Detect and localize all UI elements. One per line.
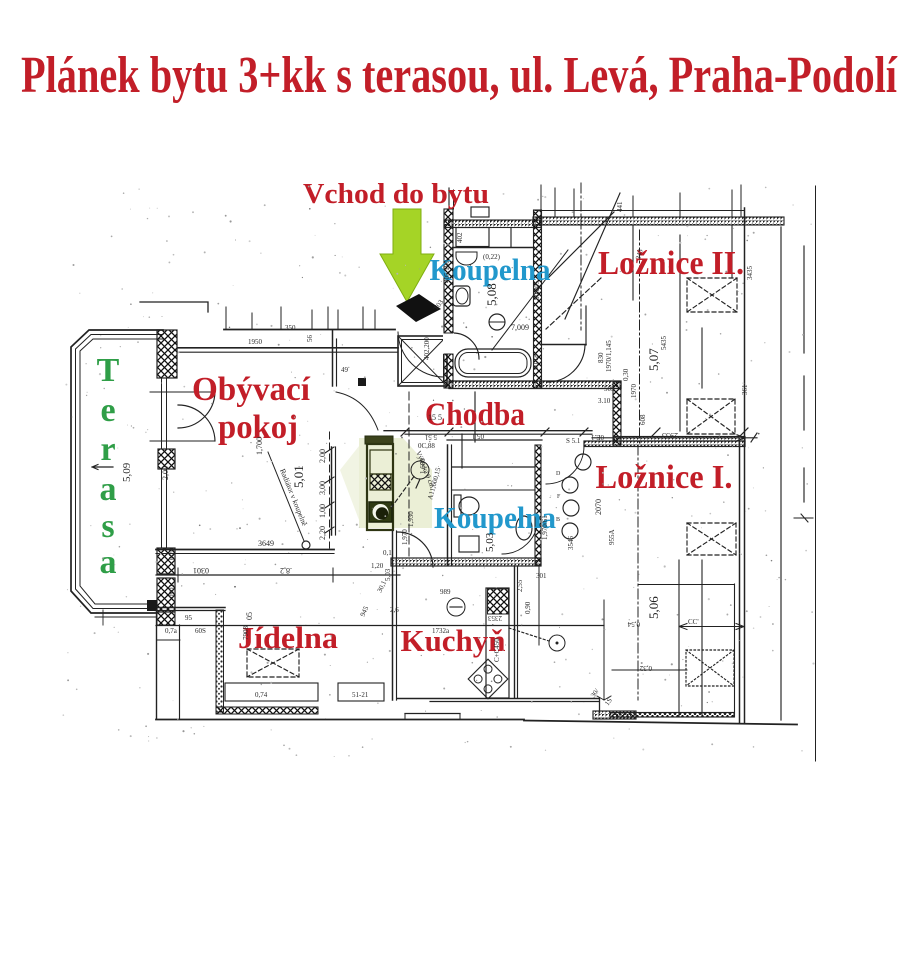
svg-text:361: 361 [741, 384, 749, 395]
svg-text:7908: 7908 [242, 626, 250, 641]
svg-text:0,90: 0,90 [524, 601, 532, 614]
svg-text:402,200: 402,200 [423, 337, 431, 360]
svg-text:5,06: 5,06 [646, 596, 661, 619]
svg-text:2353: 2353 [488, 614, 503, 622]
svg-text:0,54: 0,54 [627, 620, 640, 628]
svg-text:402: 402 [456, 232, 464, 243]
svg-text:989: 989 [440, 588, 451, 596]
svg-text:2,00: 2,00 [318, 449, 327, 463]
svg-text:608: 608 [639, 414, 647, 425]
svg-text:0C,88: 0C,88 [418, 442, 435, 450]
svg-text:(0,22): (0,22) [483, 253, 501, 261]
svg-text:2955: 2955 [662, 431, 678, 440]
svg-text:0,74: 0,74 [255, 691, 268, 699]
svg-text:Jídelna: Jídelna [238, 620, 339, 655]
svg-text:S 5.1: S 5.1 [566, 437, 581, 445]
svg-text:441: 441 [616, 201, 624, 212]
svg-text:1,00: 1,00 [318, 504, 327, 518]
svg-text:3649: 3649 [258, 539, 274, 548]
svg-text:56: 56 [306, 335, 314, 343]
svg-text:0,30: 0,30 [622, 368, 630, 381]
svg-text:a: a [100, 544, 117, 581]
svg-text:0,32: 0,32 [639, 664, 652, 672]
svg-text:1950: 1950 [248, 338, 263, 346]
svg-text:3.10: 3.10 [598, 397, 611, 405]
svg-text:830: 830 [597, 352, 605, 363]
svg-text:5435: 5435 [660, 336, 668, 351]
svg-text:s: s [101, 508, 114, 545]
svg-text:405,100: 405,100 [443, 260, 451, 283]
svg-text:Ložnice II.: Ložnice II. [598, 245, 744, 282]
svg-text:95: 95 [185, 614, 193, 622]
svg-text:0901: 0901 [168, 584, 176, 599]
svg-text:1,20: 1,20 [371, 562, 384, 570]
svg-text:0,7a: 0,7a [165, 627, 178, 635]
svg-text:7,009: 7,009 [511, 323, 529, 332]
svg-text:Obývací: Obývací [192, 371, 311, 408]
svg-text:D: D [556, 471, 561, 477]
svg-text:5,03: 5,03 [484, 532, 496, 552]
svg-text:301: 301 [536, 572, 547, 580]
svg-text:1,930: 1,930 [407, 511, 415, 527]
svg-text:0E.1: 0E.1 [590, 433, 604, 441]
svg-text:5 51: 5 51 [424, 433, 437, 441]
svg-text:2,55: 2,55 [516, 579, 524, 592]
svg-text:5,07: 5,07 [646, 348, 661, 371]
svg-text:1970/1,145: 1970/1,145 [605, 340, 613, 372]
svg-text:51-21: 51-21 [352, 691, 369, 699]
svg-text:1,970: 1,970 [401, 529, 409, 545]
svg-text:2070: 2070 [594, 499, 603, 515]
svg-text:1,700: 1,700 [255, 437, 264, 455]
svg-text:80,305: 80,305 [533, 280, 541, 300]
svg-text:05.1: 05.1 [471, 432, 484, 440]
svg-text:2,20: 2,20 [318, 526, 327, 540]
svg-text:Plánek bytu 3+kk s terasou, ul: Plánek bytu 3+kk s terasou, ul. Levá, Pr… [21, 47, 898, 104]
svg-text:2,00: 2,00 [161, 466, 170, 480]
svg-text:e: e [100, 392, 115, 429]
svg-text:B: B [556, 517, 560, 523]
svg-text:CC': CC' [688, 618, 699, 626]
svg-text:3546: 3546 [567, 536, 575, 551]
svg-text:a: a [100, 471, 117, 508]
svg-text:5,03: 5,03 [384, 568, 392, 581]
svg-text:49: 49 [341, 366, 349, 374]
svg-text:C+C450: C+C450 [493, 638, 501, 662]
svg-text:0301: 0301 [193, 566, 209, 575]
svg-text:05: 05 [245, 612, 254, 620]
svg-text:Vchod do bytu: Vchod do bytu [303, 179, 489, 210]
svg-text:3,00: 3,00 [318, 481, 327, 495]
svg-text:5,09: 5,09 [121, 462, 133, 482]
svg-text:0,1: 0,1 [383, 549, 392, 557]
svg-text:.8,2: .8,2 [280, 566, 292, 575]
svg-text:955A: 955A [608, 529, 616, 545]
svg-text:1970: 1970 [630, 384, 638, 399]
svg-text:3435: 3435 [746, 266, 754, 281]
svg-text:Kuchyň: Kuchyň [401, 623, 506, 658]
svg-text:605: 605 [168, 549, 176, 560]
svg-text:Ložnice I.: Ložnice I. [596, 459, 733, 496]
svg-text:Koupelna: Koupelna [434, 500, 556, 535]
svg-text:60S: 60S [195, 627, 206, 635]
svg-text:1732a: 1732a [432, 627, 450, 635]
svg-text:90,18: 90,18 [532, 354, 540, 370]
svg-text:r: r [100, 431, 115, 468]
svg-text:50S: 50S [604, 385, 615, 393]
svg-text:5,08: 5,08 [484, 283, 499, 306]
svg-text:T: T [97, 352, 120, 389]
svg-text:15 5: 15 5 [428, 413, 442, 422]
svg-text:2,6: 2,6 [390, 606, 399, 614]
svg-text:350: 350 [285, 324, 296, 332]
svg-text:1,970/61: 1,970/61 [541, 515, 549, 540]
